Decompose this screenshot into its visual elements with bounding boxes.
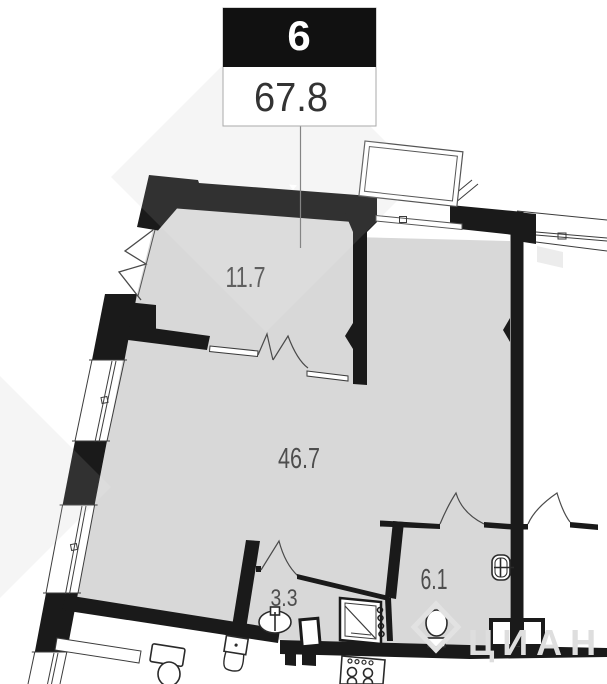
svg-text:6: 6 bbox=[287, 12, 310, 59]
svg-text:ЦИАН: ЦИАН bbox=[468, 622, 604, 663]
svg-text:67.8: 67.8 bbox=[254, 74, 328, 120]
svg-text:6.1: 6.1 bbox=[421, 564, 448, 596]
svg-text:46.7: 46.7 bbox=[278, 443, 320, 475]
svg-text:3.3: 3.3 bbox=[271, 585, 298, 612]
